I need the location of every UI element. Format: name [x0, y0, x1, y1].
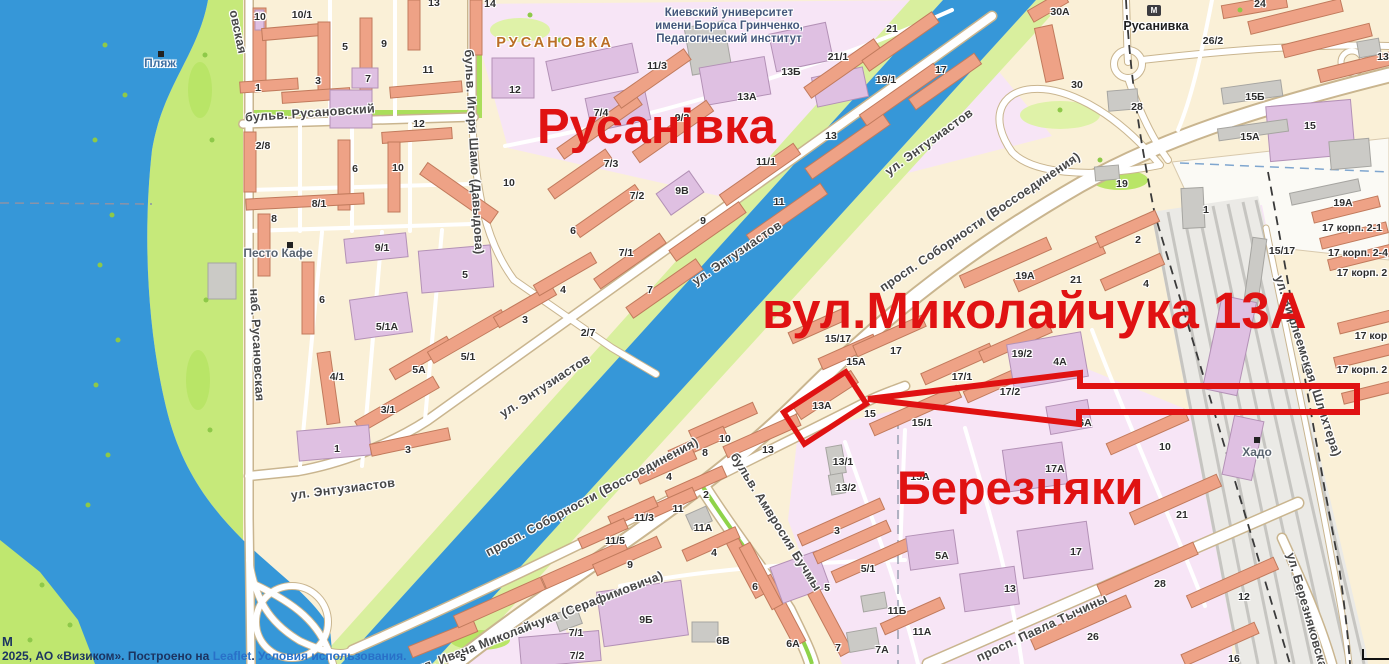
- annotation-bereznyaky-text: Березняки: [897, 464, 1143, 511]
- map-canvas[interactable]: бульв. Русановскийнаб. Русановскаяовская…: [0, 0, 1389, 664]
- attribution: М 2025, АО «Визиком». Построено на Leafl…: [2, 634, 407, 663]
- scale-bar: [1362, 649, 1389, 660]
- annotation-street-text: вул.Миколайчука 13А: [762, 285, 1307, 336]
- terms-link[interactable]: Условия использования.: [258, 649, 406, 663]
- attribution-logo-fragment: М: [2, 634, 407, 649]
- attribution-text: 2025, АО «Визиком». Построено на: [2, 649, 213, 663]
- annotation-rusanivka-text: Русанівка: [537, 103, 776, 152]
- leaflet-link[interactable]: Leaflet: [213, 649, 252, 663]
